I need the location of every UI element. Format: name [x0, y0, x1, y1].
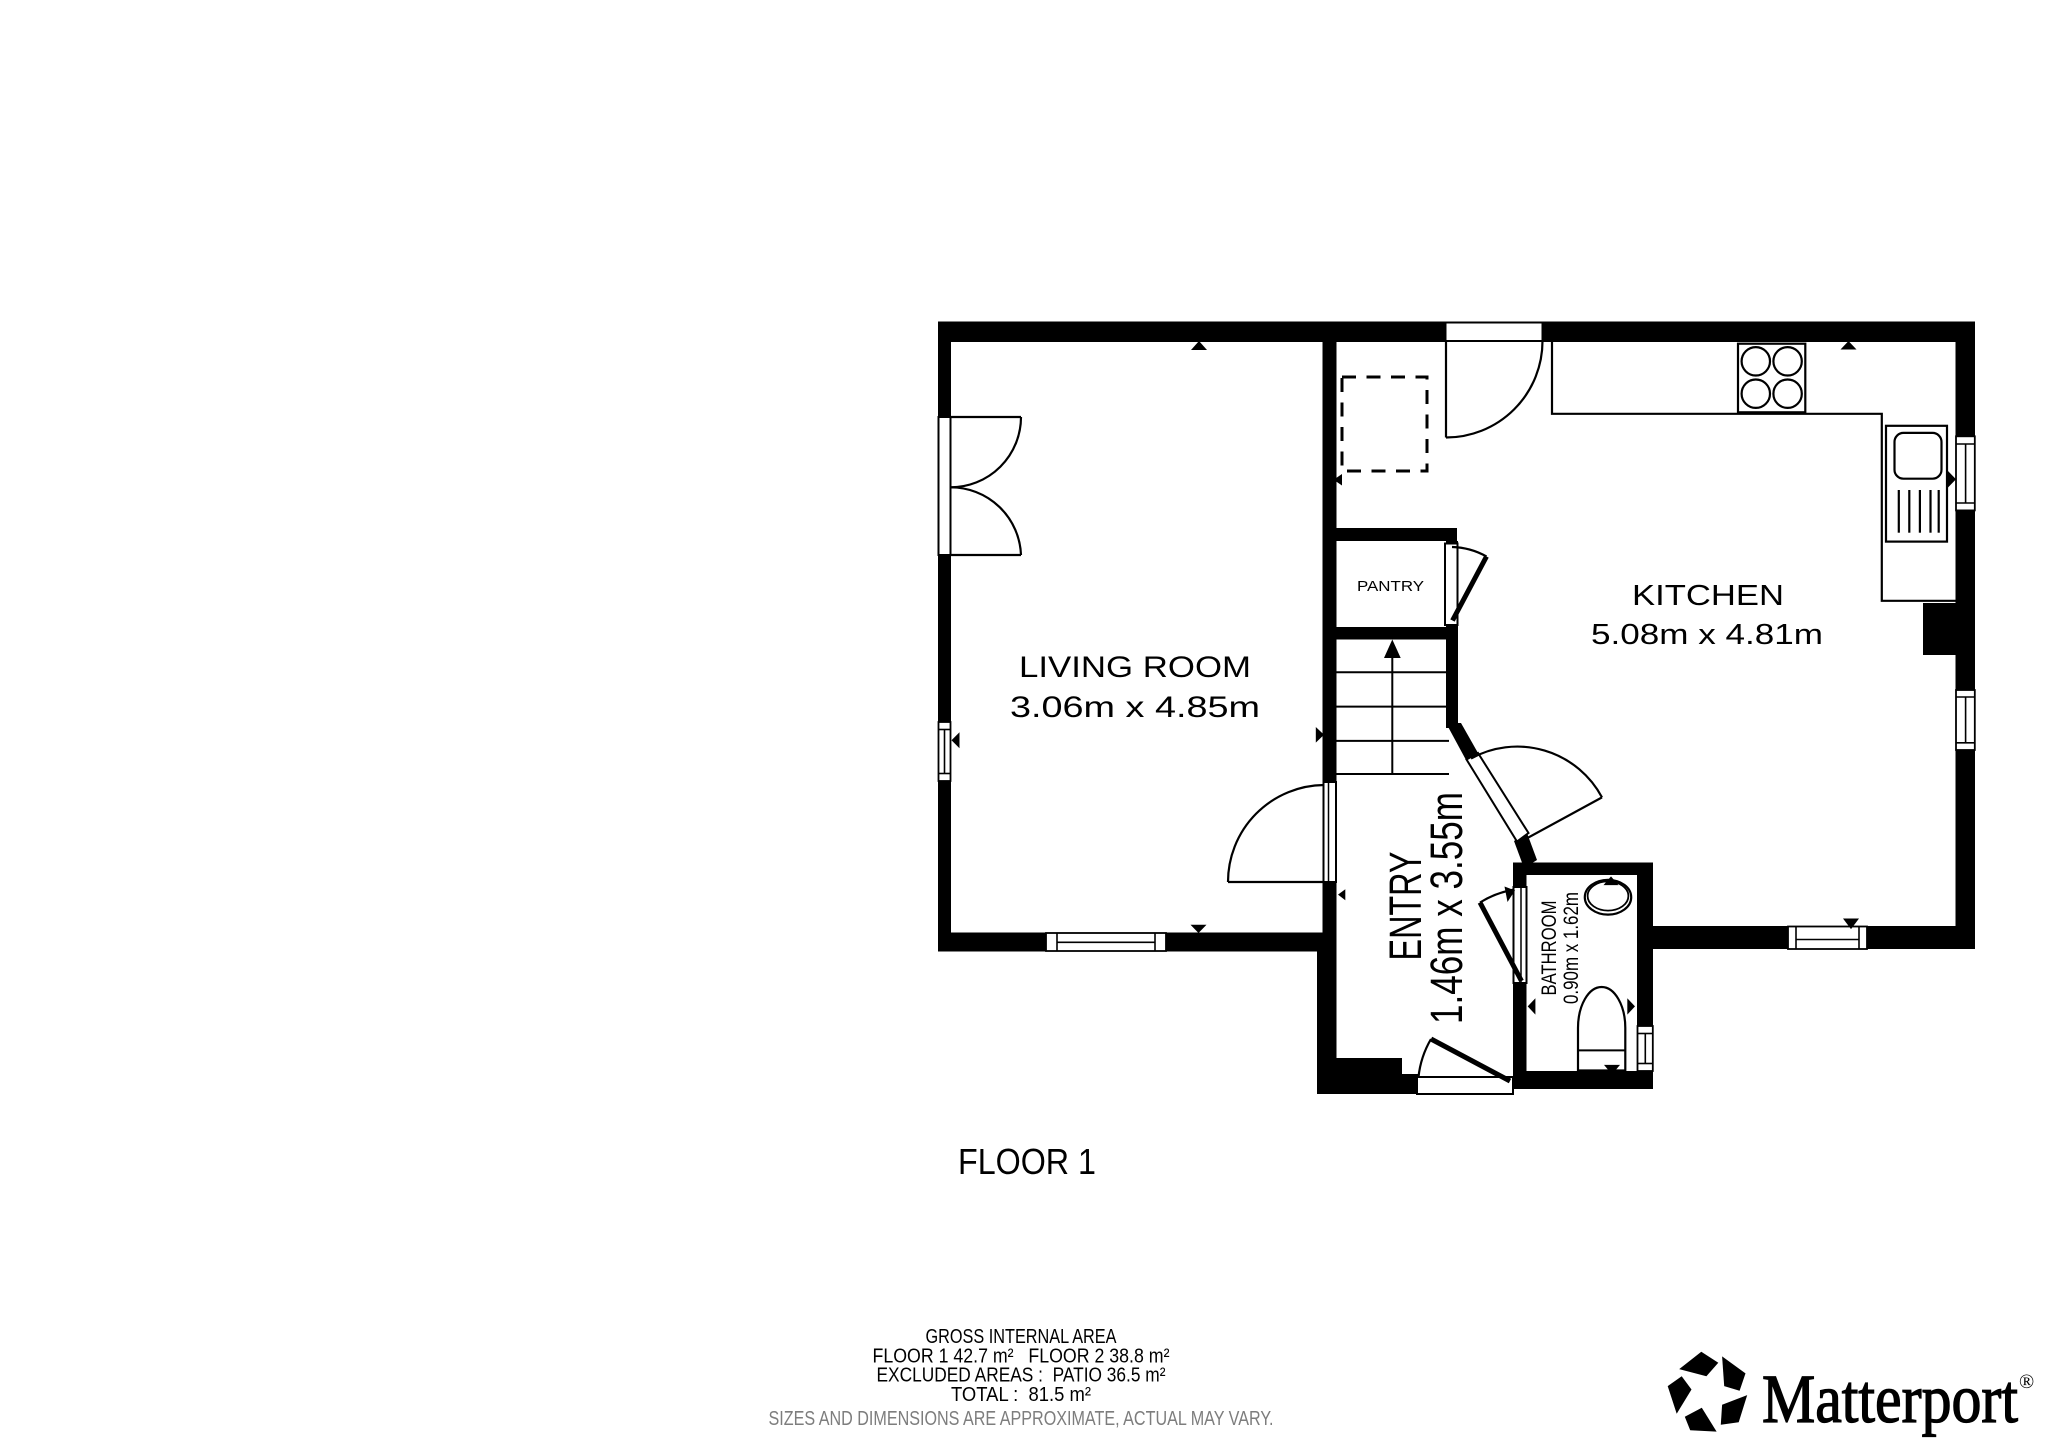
svg-text:0.90m x 1.62m: 0.90m x 1.62m: [1560, 892, 1583, 1004]
svg-text:1.46m x 3.55m: 1.46m x 3.55m: [1421, 792, 1472, 1024]
svg-text:FLOOR 1: FLOOR 1: [958, 1141, 1096, 1182]
svg-text:KITCHEN: KITCHEN: [1632, 580, 1784, 612]
svg-text:PANTRY: PANTRY: [1357, 579, 1424, 595]
svg-text:SIZES AND DIMENSIONS ARE APPRO: SIZES AND DIMENSIONS ARE APPROXIMATE, AC…: [769, 1408, 1274, 1430]
svg-text:®: ®: [2019, 1371, 2034, 1393]
svg-text:Matterport: Matterport: [1762, 1361, 2018, 1437]
svg-text:TOTAL : 81.5 m²: TOTAL : 81.5 m²: [951, 1384, 1091, 1406]
svg-text:5.08m x 4.81m: 5.08m x 4.81m: [1591, 619, 1823, 651]
svg-text:BATHROOM: BATHROOM: [1538, 901, 1561, 996]
svg-text:LIVING ROOM: LIVING ROOM: [1019, 651, 1251, 684]
svg-text:3.06m x 4.85m: 3.06m x 4.85m: [1010, 691, 1260, 724]
